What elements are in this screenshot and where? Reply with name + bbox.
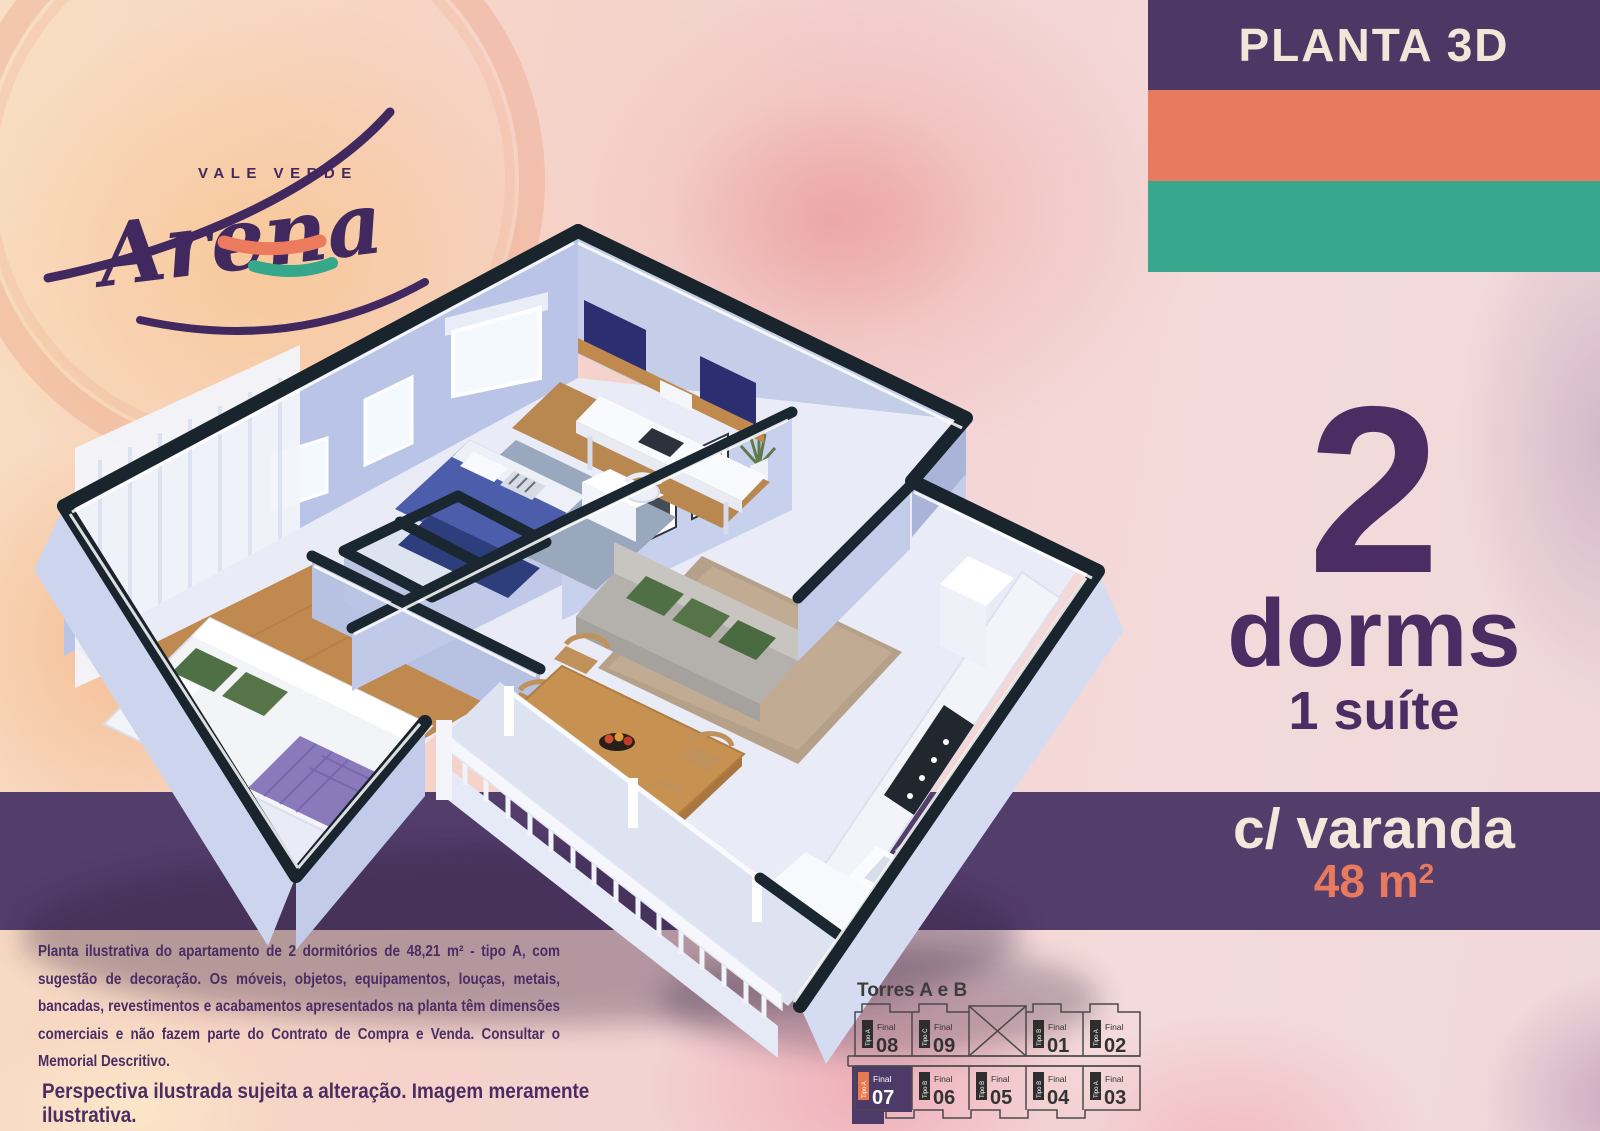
- fruit: [624, 737, 633, 746]
- tipo-label: Tipo A: [1094, 1081, 1100, 1098]
- final-label: Final: [934, 1074, 953, 1084]
- flyer-page: VALE VERDE Arena: [0, 0, 1600, 1131]
- door-post: [504, 686, 514, 736]
- unit-number: 05: [990, 1087, 1012, 1109]
- fruit: [615, 733, 624, 742]
- unit-number: 08: [876, 1035, 898, 1057]
- final-label: Final: [991, 1074, 1010, 1084]
- tower-unit-01: Tipo B Final 01: [1033, 1020, 1069, 1057]
- legal-disclaimer: Planta ilustrativa do apartamento de 2 d…: [38, 938, 560, 1076]
- burner: [907, 793, 913, 799]
- tipo-label: Tipo B: [923, 1081, 929, 1098]
- tower-unit-02: Tipo A Final 02: [1090, 1020, 1126, 1057]
- dorms-label: dorms: [1148, 586, 1600, 682]
- final-label: Final: [1048, 1022, 1067, 1032]
- tower-unit-05: Tipo B Final 05: [976, 1072, 1012, 1109]
- burner: [943, 739, 949, 745]
- brand-logo: VALE VERDE Arena: [48, 112, 425, 331]
- door-post: [628, 778, 638, 828]
- tower-unit-04: Tipo B Final 04: [1033, 1072, 1070, 1109]
- tipo-label: Tipo A: [866, 1029, 872, 1046]
- unit-number: 01: [1047, 1035, 1069, 1057]
- final-label: Final: [877, 1022, 896, 1032]
- tower-unit-06: Tipo B Final 06: [919, 1072, 955, 1109]
- tipo-label: Tipo C: [923, 1028, 929, 1046]
- tipo-label: Tipo A: [862, 1081, 868, 1098]
- tipo-label: Tipo B: [1037, 1029, 1043, 1046]
- tipo-label: Tipo A: [1094, 1029, 1100, 1046]
- railing-corner-post: [436, 720, 452, 800]
- area-number: 48 m: [1314, 855, 1419, 907]
- unit-number: 02: [1104, 1035, 1126, 1057]
- final-label: Final: [1105, 1022, 1124, 1032]
- unit-number: 04: [1047, 1087, 1070, 1109]
- tipo-label: Tipo B: [980, 1081, 986, 1098]
- area-superscript: 2: [1419, 858, 1435, 889]
- burner: [931, 757, 937, 763]
- burner: [919, 775, 925, 781]
- varanda-label: c/ varanda: [1148, 801, 1600, 858]
- final-label: Final: [934, 1022, 953, 1032]
- final-label: Final: [1105, 1074, 1124, 1084]
- final-label: Final: [1048, 1074, 1067, 1084]
- unit-number: 03: [1104, 1087, 1126, 1109]
- dorms-count: 2: [1148, 372, 1600, 610]
- unit-number: 09: [933, 1035, 955, 1057]
- unit-number: 07: [872, 1087, 894, 1109]
- area-value: 48 m2: [1148, 858, 1600, 904]
- unit-number: 06: [933, 1087, 955, 1109]
- header-bar-purple: PLANTA 3D: [1148, 0, 1600, 90]
- tipo-label: Tipo B: [1037, 1081, 1043, 1098]
- final-label: Final: [873, 1074, 892, 1084]
- accent-bar-teal: [1148, 181, 1600, 272]
- illustrative-footnote: Perspectiva ilustrada sujeita a alteraçã…: [42, 1080, 618, 1128]
- suite-label: 1 suíte: [1148, 684, 1600, 738]
- fruit: [605, 735, 614, 744]
- accent-bar-orange: [1148, 90, 1600, 181]
- page-title: PLANTA 3D: [1148, 0, 1600, 90]
- tower-unit-03: Tipo A Final 03: [1090, 1072, 1126, 1109]
- tower-title: Torres A e B: [857, 980, 967, 1001]
